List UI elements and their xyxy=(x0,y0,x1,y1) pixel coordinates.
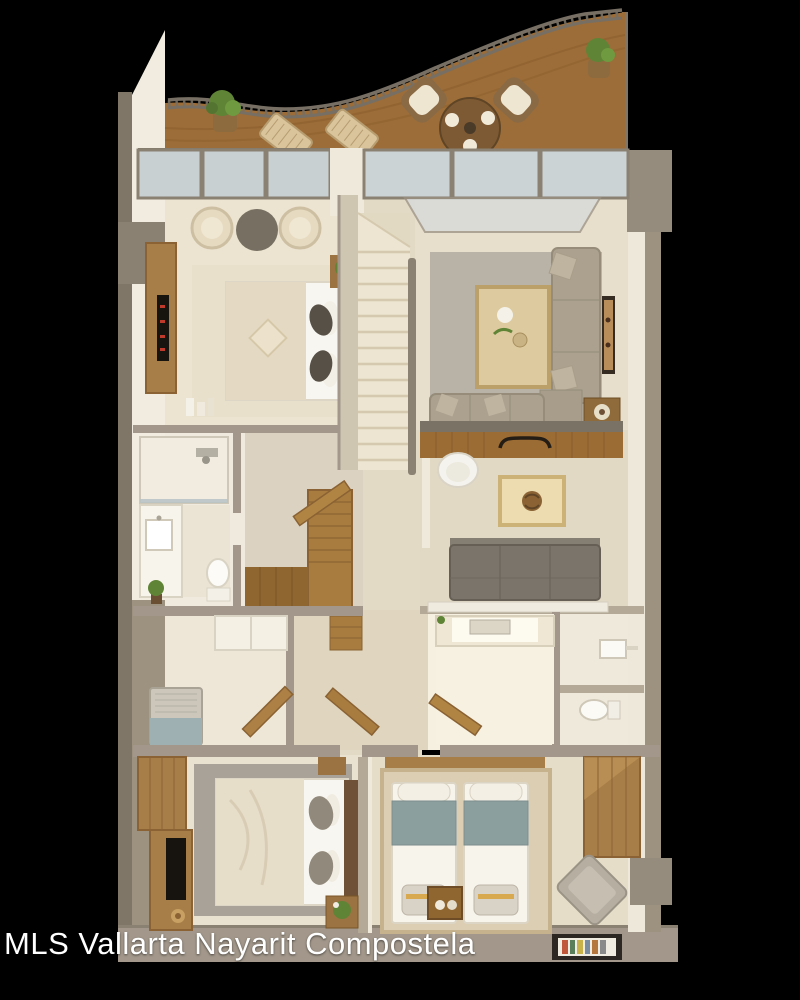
tv-desk xyxy=(150,830,192,930)
wood-bar-desk xyxy=(420,421,623,458)
wardrobe xyxy=(584,757,640,857)
wardrobe xyxy=(138,757,186,830)
sink xyxy=(470,620,510,634)
toilet xyxy=(580,700,620,720)
walk-in-shower xyxy=(140,437,228,503)
tv xyxy=(166,838,186,900)
right-pillar xyxy=(627,150,672,232)
tv xyxy=(157,295,169,361)
round-side-table xyxy=(236,209,278,251)
double-bed xyxy=(226,280,356,402)
square-table xyxy=(500,477,564,525)
toilet xyxy=(207,559,230,601)
wood-nightstand xyxy=(428,887,462,919)
three-seat-sofa xyxy=(450,538,600,600)
wall-shelf xyxy=(318,757,346,775)
kitchen xyxy=(429,614,554,744)
wall-art xyxy=(602,296,615,374)
master-window xyxy=(138,150,330,198)
stair-bottom-steps xyxy=(330,616,362,650)
washing-machine xyxy=(150,688,202,745)
terrace xyxy=(165,10,625,164)
tv-console xyxy=(146,243,176,393)
nightstand-plant xyxy=(326,896,358,928)
picture-frame-on-floor xyxy=(552,934,622,960)
coffee-table xyxy=(477,287,549,387)
twin-bed-2 xyxy=(464,783,528,923)
living-window xyxy=(364,150,628,198)
double-bed xyxy=(216,779,358,905)
floor-plan-screenshot: MLS Vallarta Nayarit Compostela xyxy=(0,0,800,1000)
floor-plan-render xyxy=(0,0,800,1000)
living-room xyxy=(430,248,620,432)
second-bedroom xyxy=(138,757,358,930)
wall-shelf xyxy=(385,757,545,769)
third-bedroom xyxy=(382,757,640,932)
handrail xyxy=(408,258,416,475)
watermark-caption: MLS Vallarta Nayarit Compostela xyxy=(4,926,476,962)
left-wall-cap xyxy=(118,92,132,934)
